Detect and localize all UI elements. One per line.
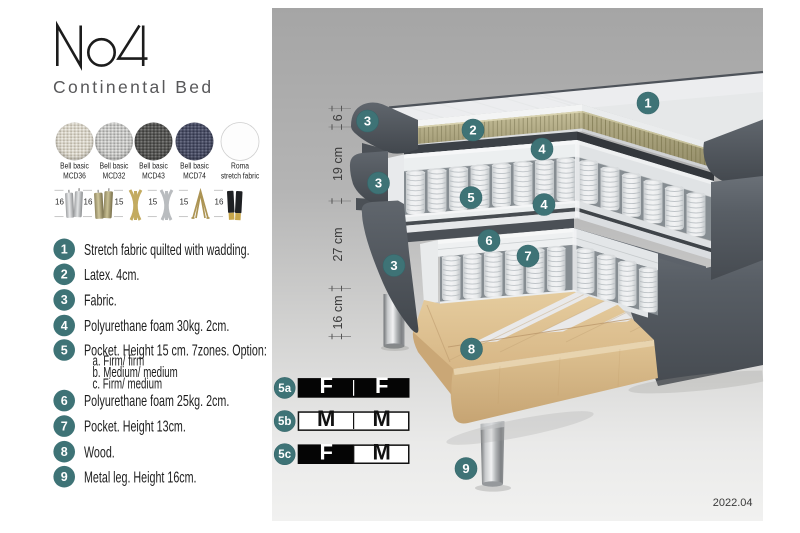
svg-text:19 cm: 19 cm xyxy=(331,147,345,181)
svg-text:16: 16 xyxy=(215,198,224,207)
svg-text:1: 1 xyxy=(644,96,651,111)
svg-text:6: 6 xyxy=(485,233,492,248)
svg-text:4: 4 xyxy=(540,197,548,212)
svg-text:4: 4 xyxy=(61,319,68,333)
svg-text:5b: 5b xyxy=(278,416,291,428)
svg-text:Bell basic: Bell basic xyxy=(100,161,129,171)
svg-text:8: 8 xyxy=(468,342,475,357)
svg-text:5: 5 xyxy=(467,190,474,205)
svg-text:16: 16 xyxy=(55,198,64,207)
svg-text:Metal leg. Height 16cm.: Metal leg. Height 16cm. xyxy=(84,468,197,486)
svg-text:Bell basic: Bell basic xyxy=(180,161,209,171)
svg-text:27 cm: 27 cm xyxy=(331,227,345,261)
svg-text:F: F xyxy=(375,373,388,398)
svg-text:Fabric.: Fabric. xyxy=(84,291,117,309)
svg-text:Continental Bed: Continental Bed xyxy=(53,77,214,97)
svg-text:3: 3 xyxy=(364,114,371,129)
svg-text:M: M xyxy=(317,406,335,431)
svg-text:Bell basic: Bell basic xyxy=(139,161,168,171)
svg-text:15: 15 xyxy=(148,198,157,207)
svg-text:MCD32: MCD32 xyxy=(103,170,126,180)
svg-text:Bell basic: Bell basic xyxy=(60,161,89,171)
svg-text:Polyurethane foam 30kg. 2cm.: Polyurethane foam 30kg. 2cm. xyxy=(84,317,229,335)
svg-text:Polyurethane foam 25kg. 2cm.: Polyurethane foam 25kg. 2cm. xyxy=(84,392,229,410)
svg-text:6: 6 xyxy=(331,114,345,121)
svg-text:15: 15 xyxy=(179,198,188,207)
svg-text:Pocket. Height 13cm.: Pocket. Height 13cm. xyxy=(84,418,186,436)
svg-text:M: M xyxy=(373,406,391,431)
svg-text:15: 15 xyxy=(115,198,124,207)
svg-text:9: 9 xyxy=(61,470,68,484)
svg-text:3: 3 xyxy=(375,176,382,191)
svg-text:5c: 5c xyxy=(278,449,291,461)
svg-text:F: F xyxy=(319,439,332,464)
svg-text:9: 9 xyxy=(462,461,469,476)
svg-text:stretch fabric: stretch fabric xyxy=(221,170,259,180)
svg-text:M: M xyxy=(373,439,391,464)
svg-text:2: 2 xyxy=(61,268,68,282)
svg-text:6: 6 xyxy=(61,394,68,408)
svg-text:MCD43: MCD43 xyxy=(142,170,165,180)
svg-text:7: 7 xyxy=(61,419,68,433)
svg-text:7: 7 xyxy=(524,249,531,264)
svg-text:MCD36: MCD36 xyxy=(63,170,86,180)
svg-text:3: 3 xyxy=(390,258,397,273)
svg-text:Latex. 4cm.: Latex. 4cm. xyxy=(84,266,139,284)
svg-text:4: 4 xyxy=(538,142,546,157)
svg-text:5a: 5a xyxy=(278,383,291,395)
svg-text:16: 16 xyxy=(84,198,93,207)
svg-text:2022.04: 2022.04 xyxy=(713,497,753,509)
svg-text:c. Firm/ medium: c. Firm/ medium xyxy=(93,375,163,391)
svg-text:Stretch fabric quilted with wa: Stretch fabric quilted with wadding. xyxy=(84,241,250,259)
svg-text:Wood.: Wood. xyxy=(84,443,115,461)
svg-text:16 cm: 16 cm xyxy=(331,295,345,329)
svg-text:2: 2 xyxy=(469,123,476,138)
svg-text:1: 1 xyxy=(61,243,68,257)
svg-text:F: F xyxy=(319,373,332,398)
svg-text:Roma: Roma xyxy=(231,161,249,171)
svg-text:5: 5 xyxy=(61,343,68,357)
svg-text:MCD74: MCD74 xyxy=(183,170,206,180)
svg-text:8: 8 xyxy=(61,445,68,459)
svg-text:3: 3 xyxy=(61,293,68,307)
